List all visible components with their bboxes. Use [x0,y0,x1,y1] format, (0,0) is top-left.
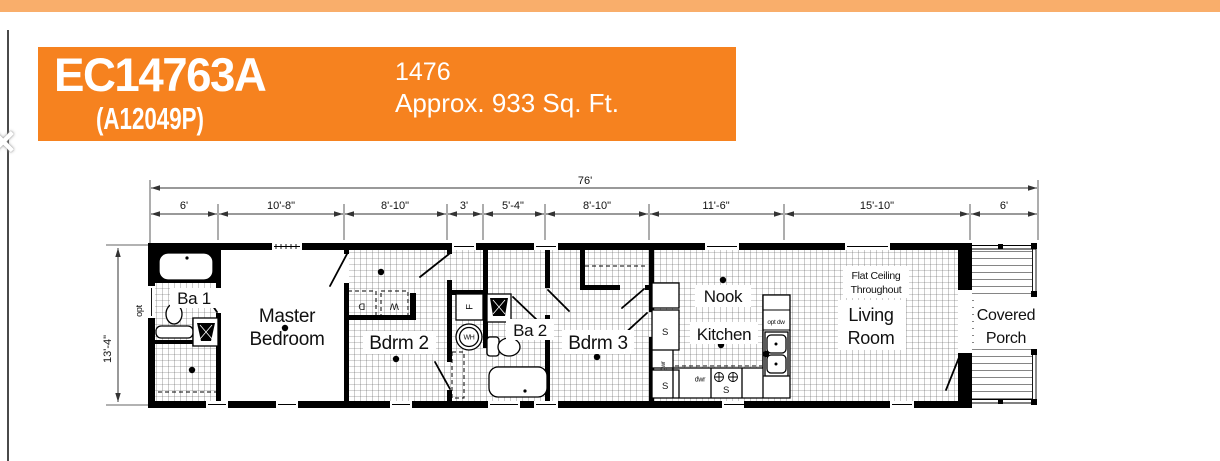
label-bdrm2: Bdrm 2 [369,333,428,354]
label-ba1: Ba 1 [177,289,211,308]
dim-seg-9: 6' [1000,200,1008,212]
label-drawer-2: dwr [695,377,706,384]
label-opt-window: opt [134,304,144,316]
label-washer: W [390,301,399,312]
label-bdrm3: Bdrm 3 [568,333,627,354]
label-shelf-3: S [723,385,729,396]
label-porch-2: Porch [986,330,1026,347]
ba2-toilet-bowl [498,338,520,356]
label-kitchen: Kitchen [697,325,752,344]
label-drawer-1: dwr [660,360,667,371]
dim-seg-6: 8'-10" [583,200,611,212]
label-furnace: F [465,304,476,310]
dim-seg-1: 6' [180,200,188,212]
ba2-tub [489,367,547,397]
dim-seg-4: 3' [460,200,468,212]
ba2-toilet-tank [487,337,499,356]
faucet [763,351,769,357]
dim-seg-7: 11'-6" [702,200,729,212]
label-porch-1: Covered [977,307,1035,324]
label-master-2: Bedroom [250,329,325,350]
dim-overall-depth: 13'-4" [102,335,114,363]
dim-overall-width: 76' [578,175,592,187]
label-water-heater: WH [463,335,474,342]
label-ba2: Ba 2 [513,321,547,340]
label-ceiling-note-2: Throughout [851,284,902,296]
floorplan-drawing: 76' 6' 10'-8" 8'-10" 3' 5'-4" 8'-10" 11'… [0,0,1220,461]
ba1-toilet-tank [156,326,193,338]
floorplan-page: ✕ EC14763A (A12049P) 1476 Approx. 933 Sq… [0,0,1220,461]
label-shelf-1: S [662,327,668,338]
label-nook: Nook [704,287,743,306]
dim-seg-2: 10'-8" [267,200,295,212]
label-master-1: Master [259,306,316,327]
label-living-1: Living [848,305,893,325]
label-shelf-2: S [662,381,668,392]
label-opt-dishwasher: opt dw [767,319,785,326]
closet-floor [155,344,216,401]
label-dryer: D [358,301,365,312]
dim-seg-5: 5'-4" [502,200,524,212]
dim-seg-3: 8'-10" [381,200,409,212]
label-ceiling-note-1: Flat Ceiling [852,270,901,282]
dim-seg-8: 15'-10" [860,200,894,212]
label-living-2: Room [848,328,895,348]
